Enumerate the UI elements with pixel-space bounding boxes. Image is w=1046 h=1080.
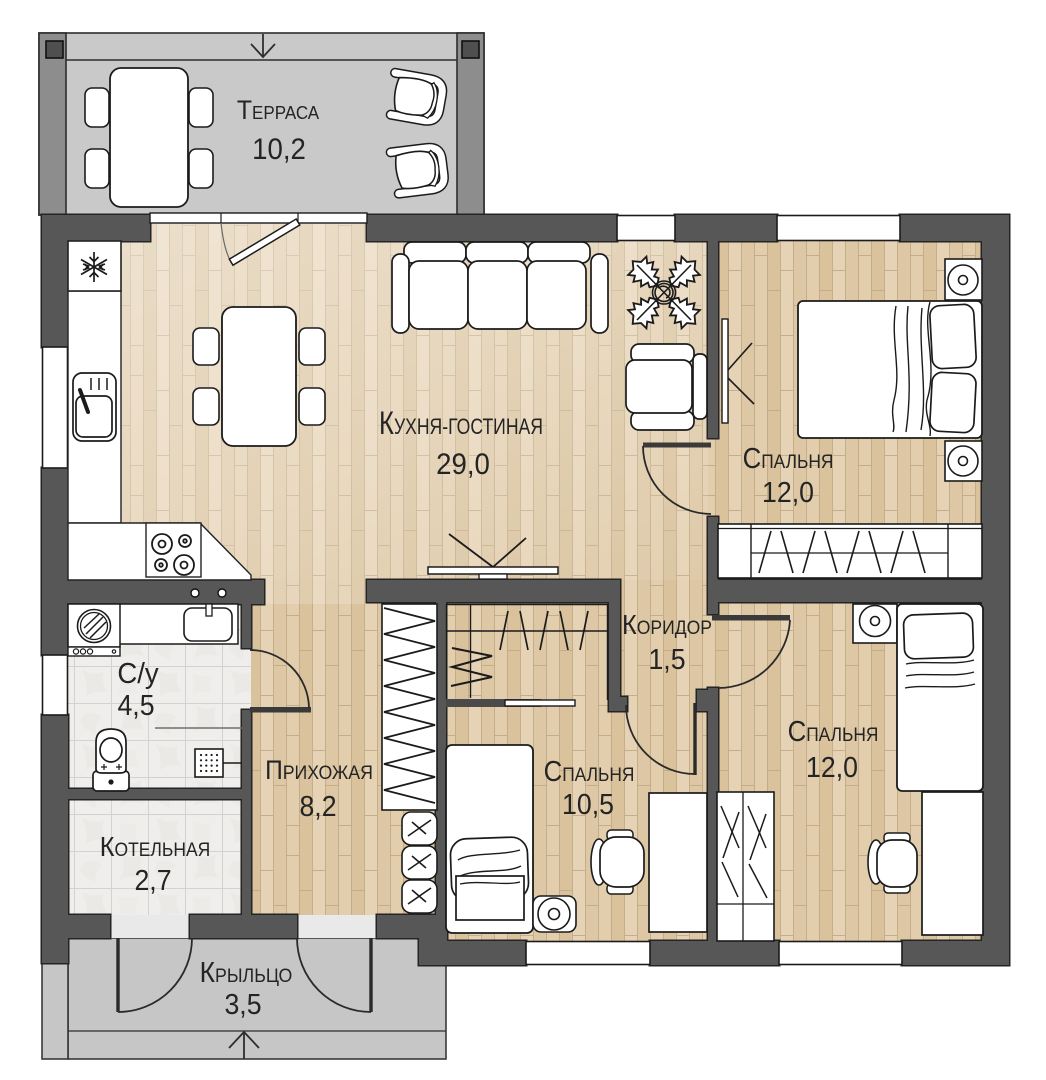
svg-text:2,7: 2,7 bbox=[134, 864, 171, 896]
svg-text:3,5: 3,5 bbox=[224, 988, 261, 1020]
svg-text:4,5: 4,5 bbox=[117, 689, 154, 721]
svg-text:12,0: 12,0 bbox=[762, 476, 814, 508]
svg-text:8,2: 8,2 bbox=[299, 790, 336, 822]
svg-text:1,5: 1,5 bbox=[648, 643, 685, 675]
svg-text:10,5: 10,5 bbox=[562, 788, 614, 820]
svg-text:С/у: С/у bbox=[117, 656, 159, 689]
svg-text:10,2: 10,2 bbox=[252, 133, 306, 166]
svg-text:ПРИХОЖАЯ: ПРИХОЖАЯ bbox=[265, 756, 373, 785]
svg-text:12,0: 12,0 bbox=[806, 751, 858, 783]
svg-text:29,0: 29,0 bbox=[436, 448, 490, 481]
